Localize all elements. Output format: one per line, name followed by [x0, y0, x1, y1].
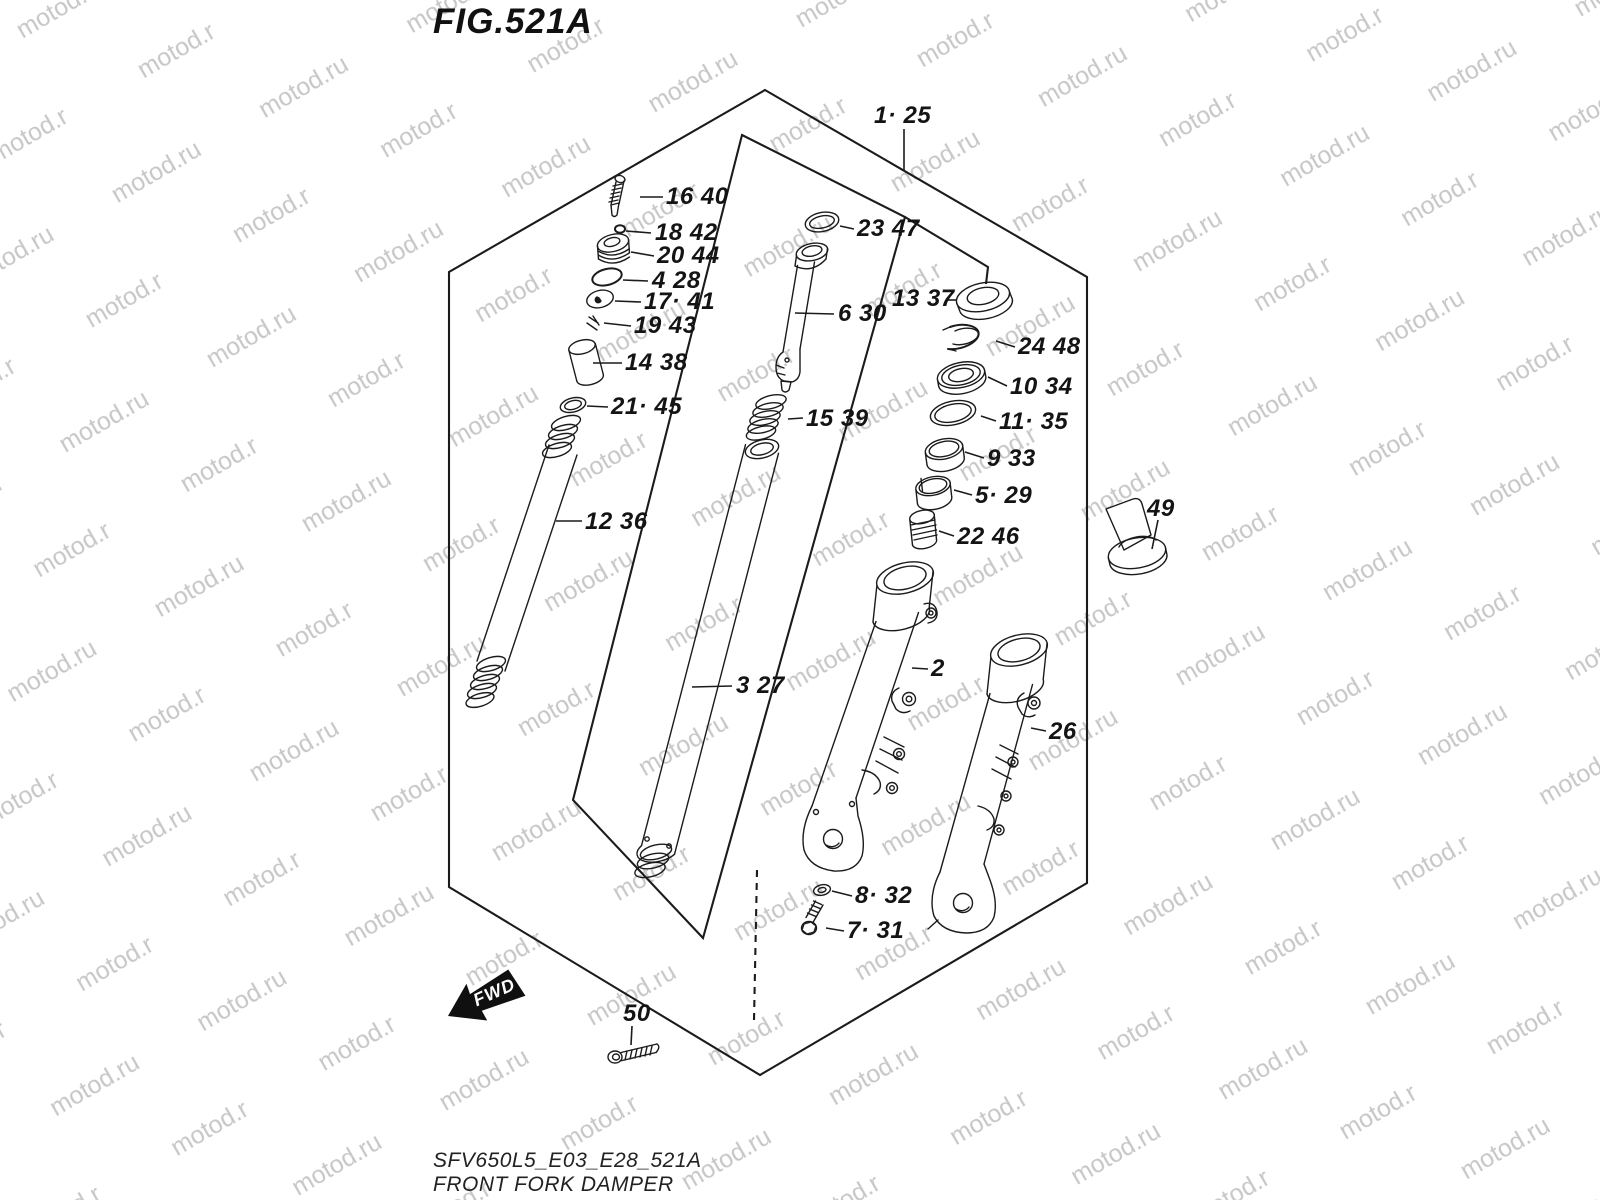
part-label-23-47: 23 47: [856, 215, 921, 242]
figure-title: FIG.521A: [433, 2, 593, 41]
part-label-9-33: 9 33: [987, 445, 1036, 472]
exploded-parts-diagram: motod.ru motod.ru FIG.521A: [0, 0, 1600, 1200]
part-label-10-34: 10 34: [1010, 373, 1073, 400]
part-label-5-29: 5· 29: [975, 482, 1032, 509]
part-label-20-44: 20 44: [656, 242, 720, 269]
part-label-8-32: 8· 32: [855, 882, 912, 909]
part-label-22-46: 22 46: [956, 523, 1020, 550]
footer-part-code: SFV650L5_E03_E28_521A: [433, 1149, 702, 1172]
part-label-49: 49: [1146, 495, 1175, 522]
part-label-15-39: 15 39: [806, 405, 869, 432]
part-label-6-30: 6 30: [838, 300, 887, 327]
part-label-14-38: 14 38: [625, 349, 688, 376]
part-label-19-43: 19 43: [634, 312, 697, 339]
part-label-7-31: 7· 31: [847, 917, 904, 944]
watermark-layer: [0, 0, 1600, 1200]
part-label-26: 26: [1048, 718, 1077, 745]
part-label-17-41: 17· 41: [644, 288, 715, 315]
part-label-11-35: 11· 35: [999, 408, 1068, 435]
parts-catalog-page: motod.ru motod.ru FIG.521A: [0, 0, 1600, 1200]
footer-figure-name: FRONT FORK DAMPER: [433, 1173, 674, 1196]
part-label-1-25: 1· 25: [874, 102, 931, 129]
part-label-13-37: 13 37: [892, 285, 956, 312]
part-label-3-27: 3 27: [736, 672, 786, 699]
part-label-50: 50: [623, 1000, 651, 1027]
part-label-2: 2: [930, 655, 945, 682]
part-label-12-36: 12 36: [585, 508, 648, 535]
part-label-24-48: 24 48: [1017, 333, 1081, 360]
part-label-16-40: 16 40: [666, 183, 729, 210]
part-label-21-45: 21· 45: [610, 393, 682, 420]
